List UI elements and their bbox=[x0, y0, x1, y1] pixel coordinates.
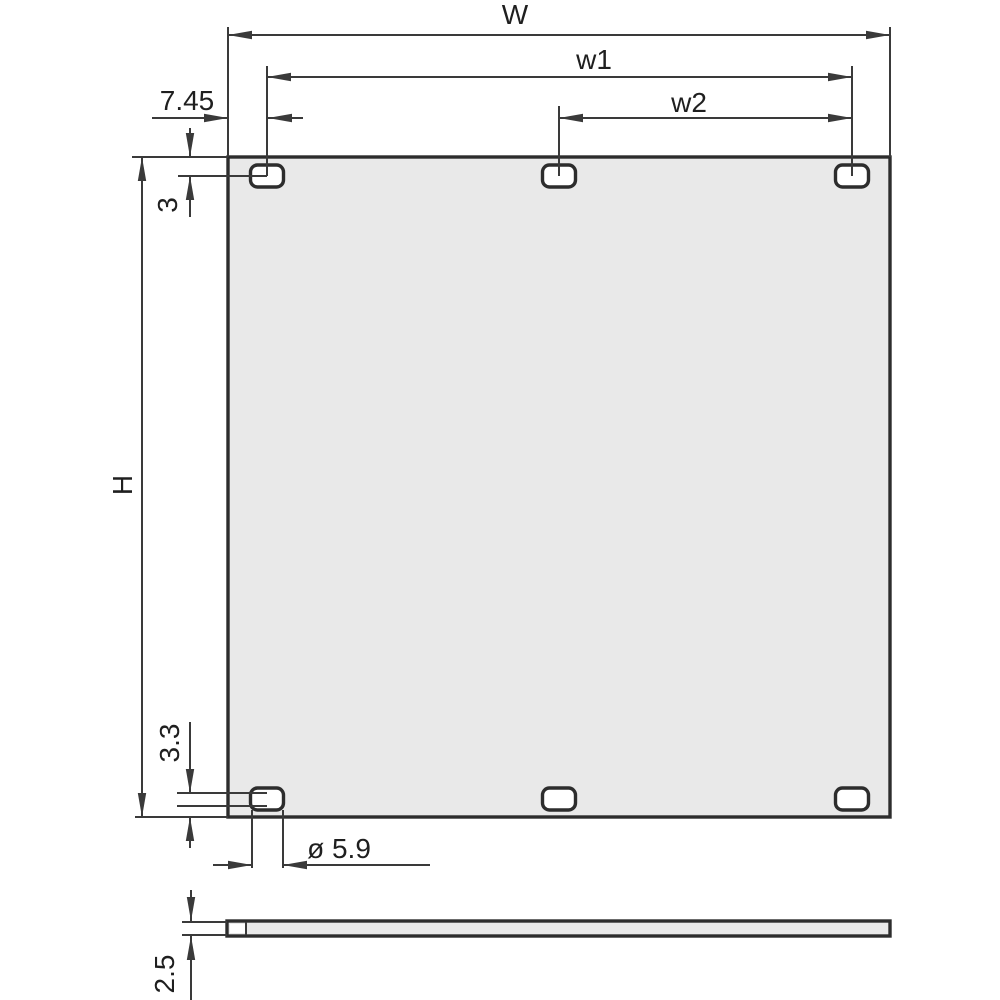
mounting-slot-bottom-center bbox=[543, 788, 576, 810]
arrow-h-top bbox=[138, 157, 146, 181]
arrow-3-down bbox=[186, 133, 194, 157]
label-w2: w2 bbox=[670, 87, 707, 118]
panel-side-view-end-detail bbox=[230, 924, 245, 933]
arrow-dia-left bbox=[228, 861, 252, 869]
arrow-25-up bbox=[187, 936, 195, 960]
technical-drawing: W w1 w2 7.45 3 bbox=[0, 0, 1000, 1000]
label-W: W bbox=[502, 0, 529, 30]
label-3: 3 bbox=[152, 197, 183, 213]
label-H: H bbox=[107, 475, 138, 495]
arrow-745-right bbox=[268, 114, 292, 122]
panel-side-view bbox=[227, 921, 890, 936]
arrow-w-right bbox=[866, 31, 890, 39]
label-7-45: 7.45 bbox=[160, 85, 215, 116]
arrow-w2-right bbox=[828, 114, 852, 122]
arrow-w2-left bbox=[559, 114, 583, 122]
arrow-33-down bbox=[186, 769, 194, 793]
mounting-slot-bottom-right bbox=[836, 788, 869, 810]
arrow-3-up bbox=[186, 176, 194, 200]
arrow-w1-right bbox=[828, 73, 852, 81]
arrow-w-left bbox=[228, 31, 252, 39]
label-hole-diameter: ø 5.9 bbox=[307, 833, 371, 864]
label-w1: w1 bbox=[575, 44, 612, 75]
arrow-h-bottom bbox=[138, 793, 146, 817]
dimension-hole-diameter: ø 5.9 bbox=[213, 810, 430, 869]
arrow-w1-left bbox=[267, 73, 291, 81]
panel-front-view bbox=[228, 157, 890, 817]
dimension-H: H bbox=[107, 157, 228, 817]
label-3-3: 3.3 bbox=[154, 724, 185, 763]
arrow-33-up bbox=[186, 817, 194, 841]
label-thickness: 2.5 bbox=[149, 955, 180, 994]
arrow-dia-right bbox=[283, 861, 307, 869]
drawing-canvas: W w1 w2 7.45 3 bbox=[0, 0, 1000, 1000]
arrow-25-down bbox=[187, 897, 195, 921]
dimension-thickness: 2.5 bbox=[149, 890, 227, 1000]
